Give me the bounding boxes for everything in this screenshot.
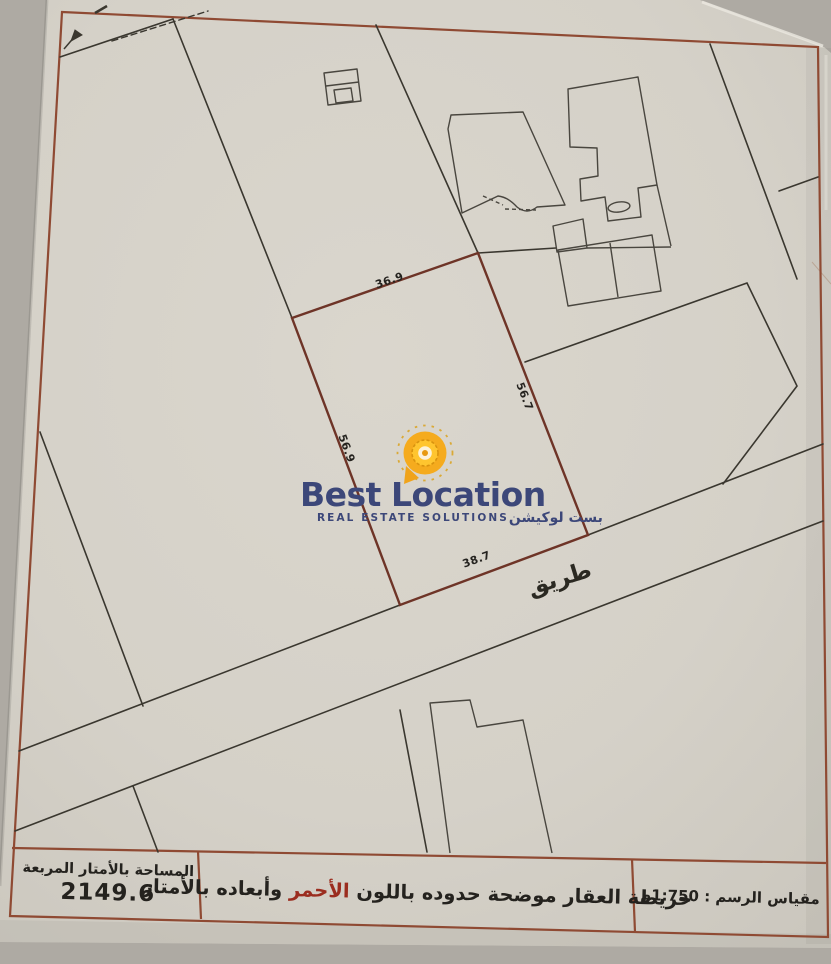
map-note: خريطة العقار موضحة حدوده باللون الأحمر و…: [201, 852, 632, 932]
note-highlight: الأحمر: [289, 878, 350, 902]
brand-word-best: Best: [300, 475, 381, 514]
scanned-survey-document: 36.9 56.7 56.9 38.7 طريق Best Location R…: [0, 0, 831, 964]
brand-tagline: REAL ESTATE SOLUTIONS: [317, 512, 509, 524]
brand-name: Best Location: [300, 478, 530, 512]
brand-tagline-arabic: بست لوكيشن: [509, 510, 603, 526]
brand-word-location: Location: [391, 475, 546, 514]
scale-label: مقياس الرسم : 1:750م: [635, 864, 824, 930]
note-suffix: وأبعاده بالأمتار: [142, 874, 283, 900]
